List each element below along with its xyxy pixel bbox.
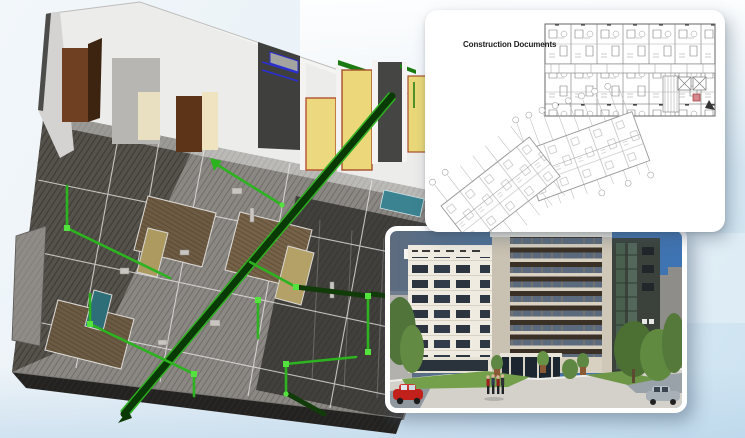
yellow-door — [306, 98, 336, 170]
balcony-tower — [490, 231, 612, 387]
construction-documents-card: Construction Documents — [425, 10, 725, 232]
brown-door — [62, 48, 88, 122]
building-render — [390, 231, 682, 408]
documents-title: Construction Documents — [463, 40, 556, 49]
plan-highlight-red — [693, 94, 700, 101]
brown-door-2 — [176, 96, 202, 152]
composite-architecture-graphic: Construction Documents — [0, 0, 745, 438]
building-render-card — [385, 226, 687, 413]
